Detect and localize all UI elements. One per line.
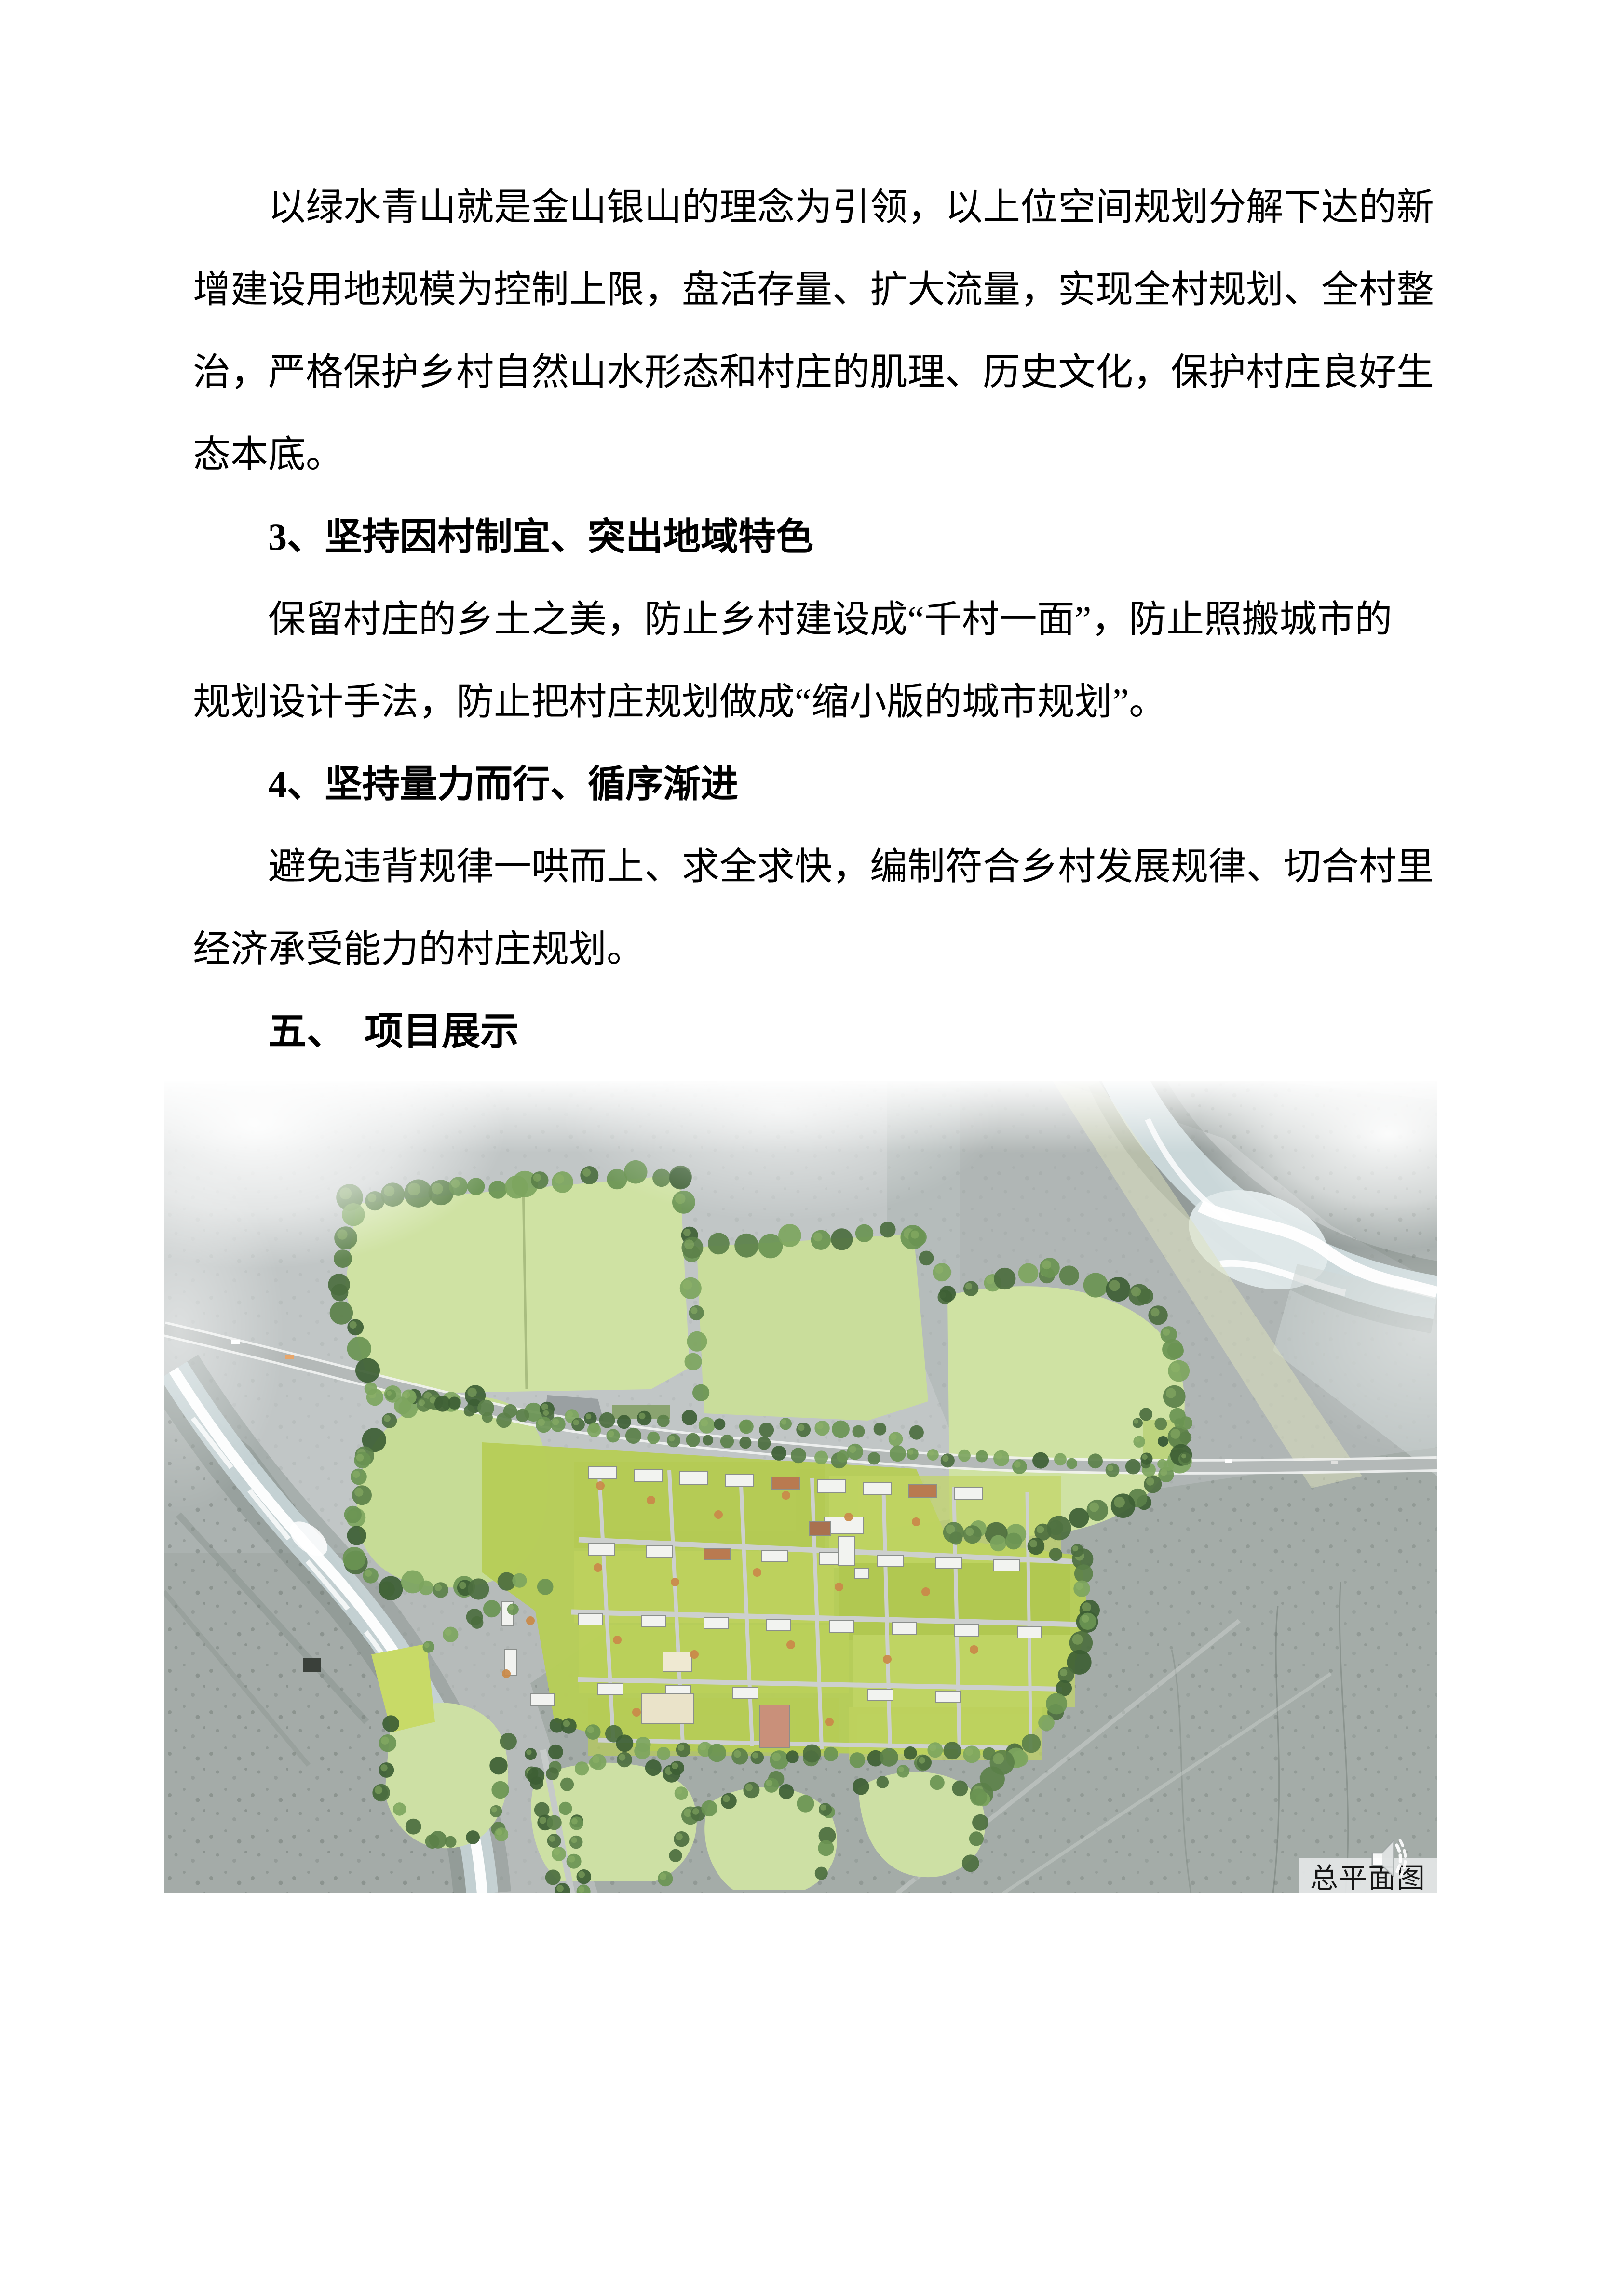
- body-line: 增建设用地规模为控制上限，盘活存量、扩大流量，实现全村规划、全村整: [193, 248, 1440, 331]
- text-block: 以绿水青山就是金山银山的理念为引领，以上位空间规划分解下达的新 增建设用地规模为…: [193, 166, 1440, 1073]
- body-line: 经济承受能力的村庄规划。: [193, 908, 1440, 990]
- body-line: 保留村庄的乡土之美，防止乡村建设成“千村一面”，防止照搬城市的: [193, 578, 1440, 660]
- body-line: 规划设计手法，防止把村庄规划做成“缩小版的城市规划”。: [193, 660, 1440, 743]
- body-line: 治，严格保护乡村自然山水形态和村庄的肌理、历史文化，保护村庄良好生: [193, 331, 1440, 413]
- document-page: 以绿水青山就是金山银山的理念为引领，以上位空间规划分解下达的新 增建设用地规模为…: [0, 0, 1624, 2296]
- section-heading-5: 五、 项目展示: [193, 990, 1440, 1073]
- body-line: 以绿水青山就是金山银山的理念为引领，以上位空间规划分解下达的新: [193, 166, 1440, 248]
- subsection-heading-3: 3、坚持因村制宜、突出地域特色: [193, 496, 1440, 578]
- farm-shed: [303, 1658, 321, 1672]
- master-plan-map: [164, 1081, 1437, 1893]
- master-plan-figure: 总平面图: [164, 1081, 1437, 1893]
- body-line: 态本底。: [193, 413, 1440, 496]
- subsection-heading-4: 4、坚持量力而行、循序渐进: [193, 743, 1440, 825]
- speaker-icon: [1367, 1834, 1409, 1883]
- body-line: 避免违背规律一哄而上、求全求快，编制符合乡村发展规律、切合村里: [193, 825, 1440, 908]
